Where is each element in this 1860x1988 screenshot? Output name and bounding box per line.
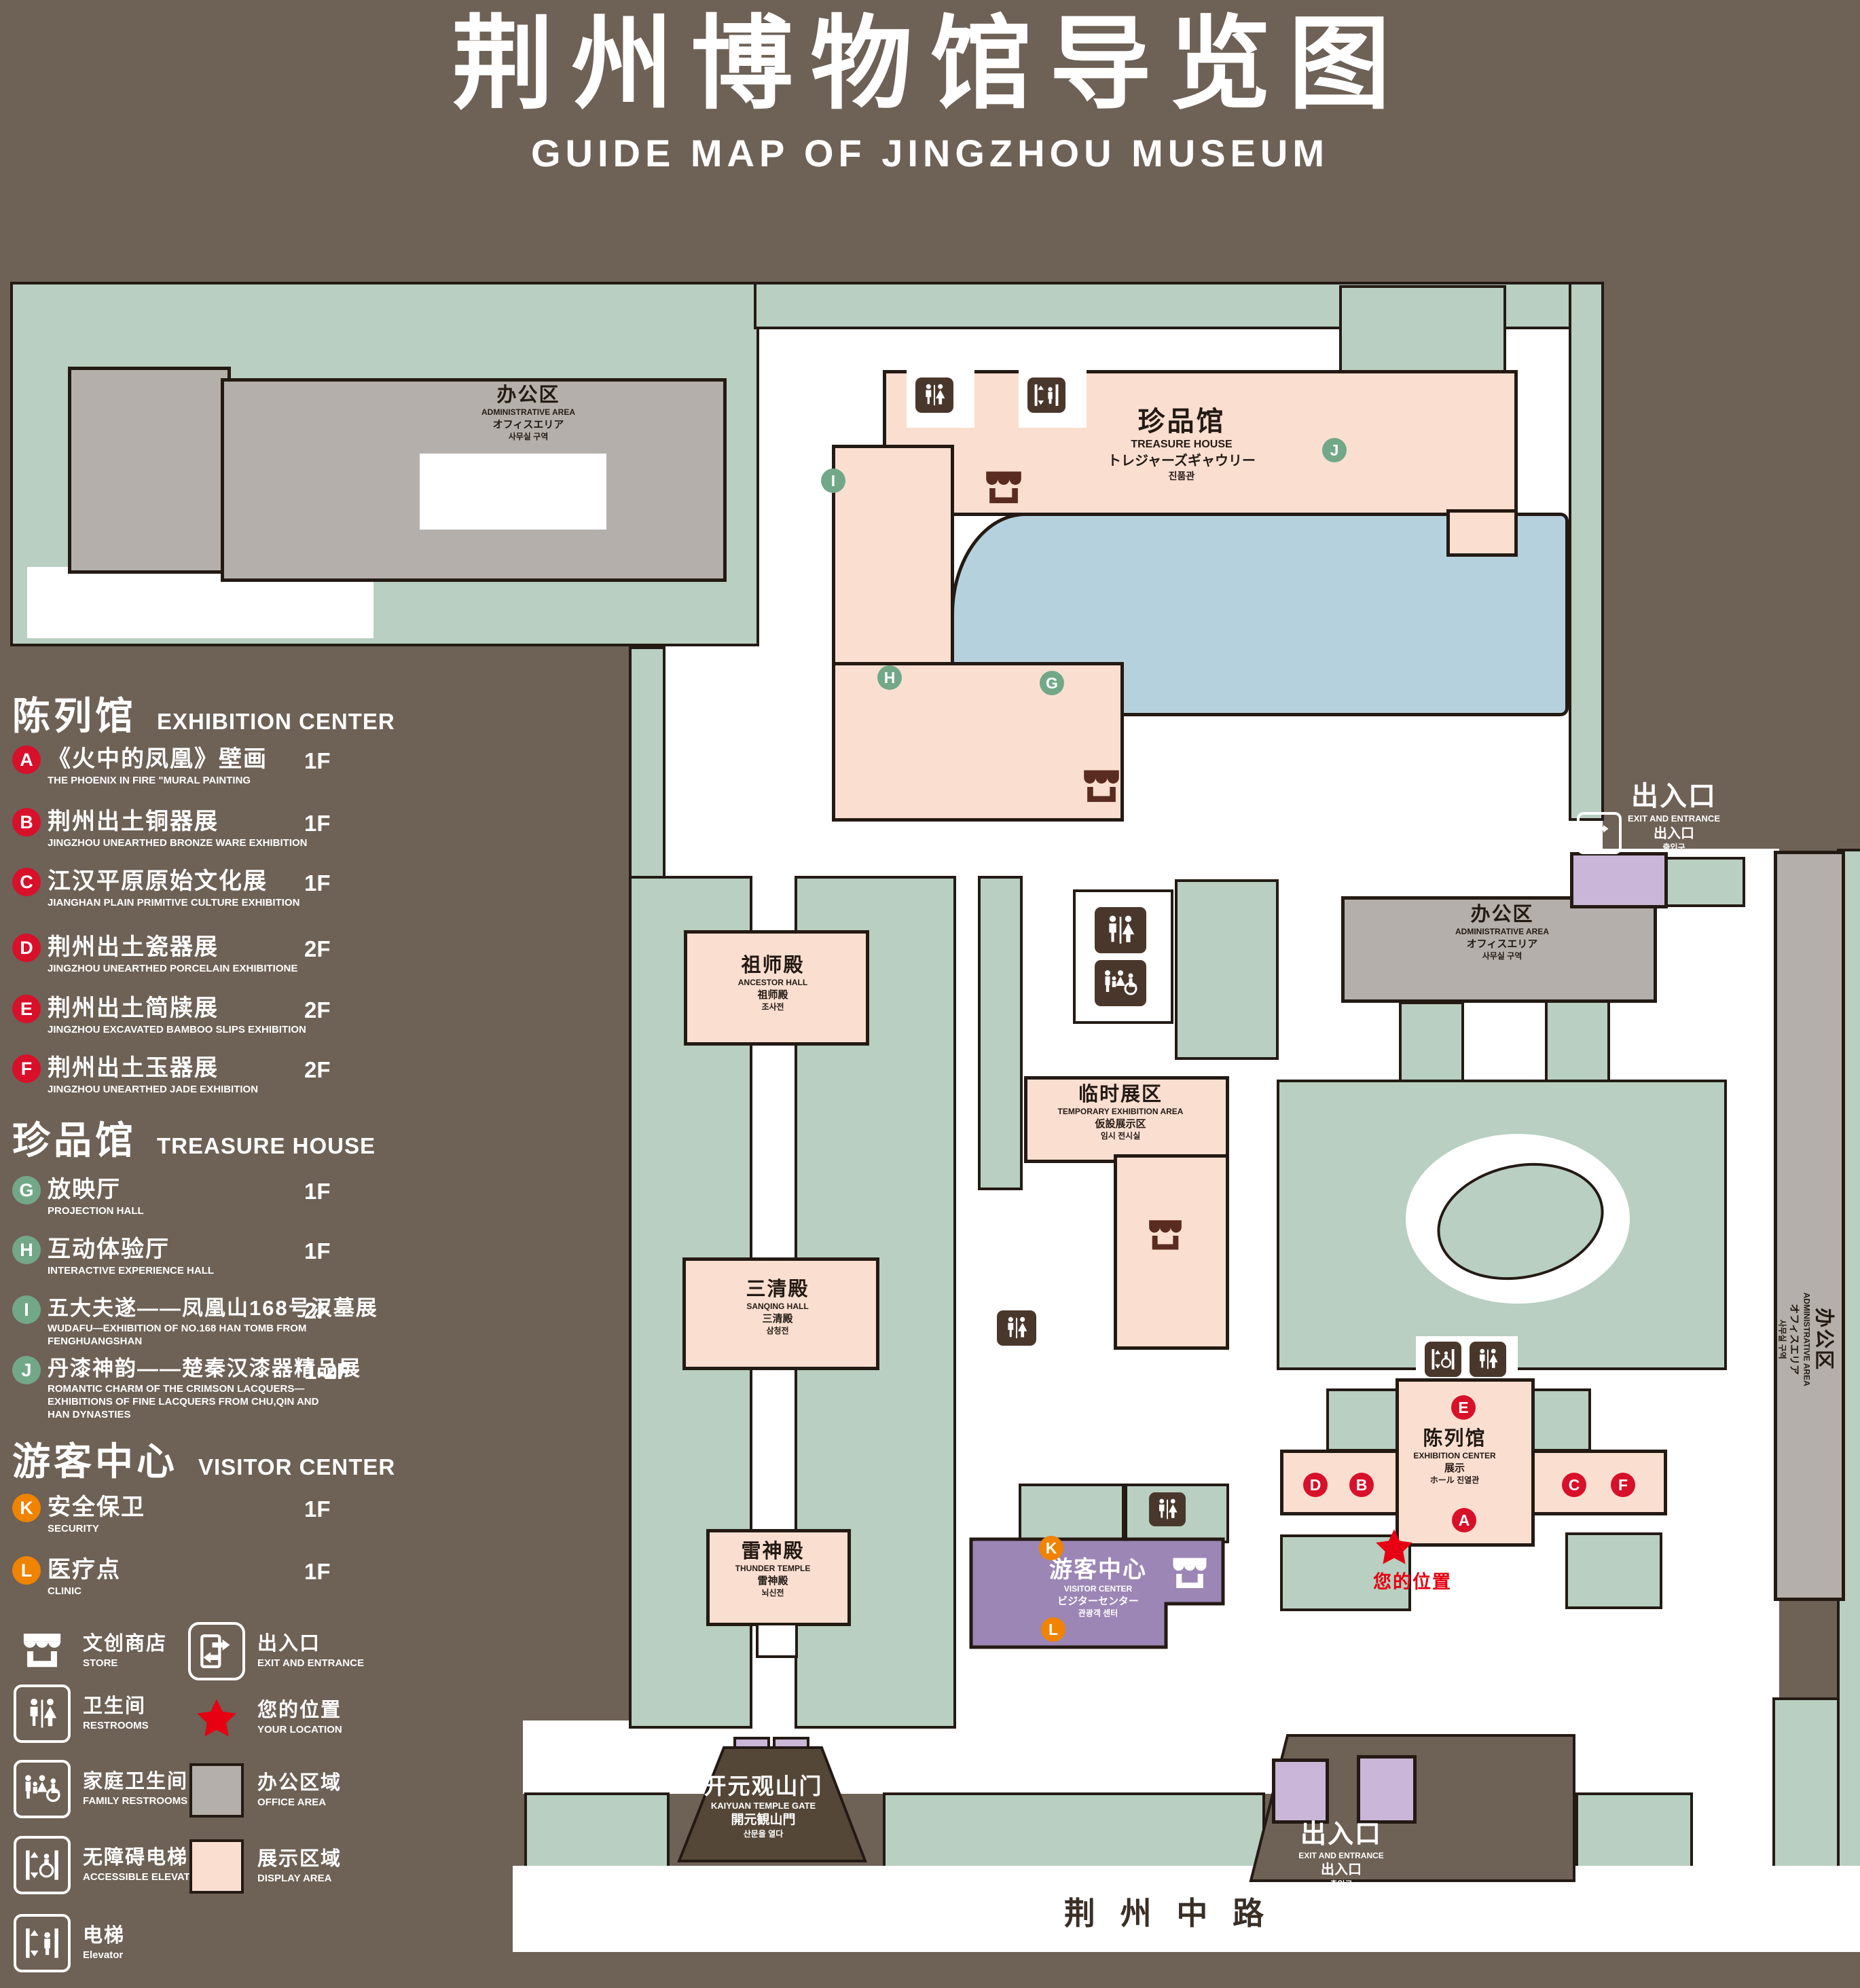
legend-item-J: J 丹漆神韵——楚秦汉漆器精品展 ROMANTIC CHARM OF THE C…: [12, 1356, 393, 1421]
marker-A: A: [1452, 1508, 1476, 1532]
badge-L: L: [12, 1556, 41, 1585]
label-thunder-temple: 雷神殿 THUNDER TEMPLE 雷神殿 뇌신전: [698, 1540, 847, 1598]
building-entrance-s2: [1357, 1755, 1417, 1824]
lawn-northeast-strip: [1569, 282, 1604, 821]
lawn-west-strip: [629, 646, 665, 880]
marker-G: G: [1040, 671, 1064, 695]
marker-C: C: [1562, 1473, 1586, 1497]
elevator-icon: [1027, 378, 1065, 413]
accessible-elevator-icon: [1425, 1342, 1461, 1377]
lawn-south-3: [1575, 1792, 1693, 1874]
label-admin-east: 办公区 ADMINISTRATIVE AREA オフィスエリア 사무실 구역: [1777, 1221, 1835, 1458]
badge-I: I: [12, 1295, 41, 1324]
admin-nw-courtyard: [420, 454, 606, 530]
building-entrance-s1: [1272, 1759, 1329, 1824]
legend-item-K: K 安全保卫 SECURITY 1F: [12, 1494, 352, 1536]
label-temporary: 临时展区 TEMPORARY EXHIBITION AREA 仮設展示区 임시 …: [1019, 1083, 1222, 1141]
floor-L: 1F: [304, 1559, 331, 1585]
badge-J: J: [12, 1356, 41, 1384]
restrooms-icon: [915, 378, 953, 413]
label-admin-mid: 办公区 ADMINISTRATIVE AREA オフィスエリア 사무실 구역: [1400, 903, 1604, 961]
marker-B: B: [1349, 1473, 1374, 1497]
lawn-mid-strip: [978, 876, 1023, 1190]
lawn-east-entrance: [1664, 857, 1745, 907]
legend-item-B: B 荆州出土铜器展 JINGZHOU UNEARTHED BRONZE WARE…: [12, 808, 352, 850]
badge-K: K: [12, 1494, 41, 1522]
legend: 陈列馆 EXHIBITION CENTER A 《火中的凤凰》壁画 THE PH…: [12, 682, 528, 1986]
floor-J: 1-2F: [304, 1359, 350, 1384]
path-east-strip: [1738, 849, 1774, 1700]
label-exit-northeast: 出入口 EXIT AND ENTRANCE 出入口 출입구: [1613, 781, 1735, 852]
thunder-temple-step: [756, 1623, 798, 1658]
legend-item-G: G 放映厅 PROJECTION HALL 1F: [12, 1176, 352, 1218]
legend-section-treasure-house: 珍品馆 TREASURE HOUSE: [12, 1110, 376, 1165]
lawn-mid-block: [1175, 879, 1279, 1060]
legend-symbol-display-area: 展示区域 DISPLAY AREA: [188, 1838, 342, 1895]
building-treasure-step: [1446, 509, 1518, 557]
legend-section-visitor-center: 游客中心 VISITOR CENTER: [12, 1431, 395, 1486]
legend-symbol-restrooms: 卫生间 RESTROOMS: [14, 1685, 149, 1742]
family-restrooms-icon: [14, 1761, 71, 1818]
badge-F: F: [12, 1054, 41, 1083]
floor-A: 1F: [304, 748, 331, 774]
legend-item-C: C 江汉平原原始文化展 JIANGHAN PLAIN PRIMITIVE CUL…: [12, 868, 352, 910]
store-icon: [1081, 769, 1122, 805]
legend-symbol-family-restrooms: 家庭卫生间 FAMILY RESTROOMS: [14, 1761, 188, 1818]
marker-E: E: [1451, 1395, 1476, 1420]
legend-item-F: F 荆州出土玉器展 JINGZHOU UNEARTHED JADE EXHIBI…: [12, 1054, 352, 1097]
road-label: 荆 州 中 路: [1039, 1889, 1297, 1934]
restrooms-icon: [997, 1310, 1036, 1346]
marker-H: H: [877, 665, 902, 690]
label-sanqing-hall: 三清殿 SANQING HALL 三清殿 삼청전: [703, 1278, 852, 1336]
label-ancestor-hall: 祖师殿 ANCESTOR HALL 祖师殿 조사전: [698, 954, 847, 1012]
office-area-swatch: [188, 1762, 245, 1819]
your-location-icon: [1375, 1528, 1413, 1565]
restrooms-icon: [1470, 1342, 1506, 1377]
title-en: GUIDE MAP OF JINGZHOU MUSEUM: [0, 131, 1860, 175]
building-entrance-ne: [1570, 852, 1668, 908]
your-location-label: 您的位置: [1348, 1567, 1477, 1594]
legend-section-exhibition-center: 陈列馆 EXHIBITION CENTER: [12, 686, 395, 741]
floor-F: 2F: [304, 1057, 331, 1083]
floor-I: 2F: [304, 1298, 331, 1324]
map-title: 荆州博物馆导览图 GUIDE MAP OF JINGZHOU MUSEUM: [0, 8, 1860, 175]
store-icon: [14, 1623, 71, 1680]
label-treasure-house: 珍品馆 TREASURE HOUSE トレジャーズギャウリー 진품관: [1080, 406, 1283, 481]
badge-B: B: [12, 808, 41, 836]
floor-D: 2F: [304, 936, 331, 962]
legend-item-L: L 医疗点 CLINIC 1F: [12, 1556, 352, 1598]
marker-J: J: [1322, 438, 1347, 462]
legend-symbol-elevator: 电梯 Elevator: [14, 1915, 125, 1972]
label-visitor-center: 游客中心 VISITOR CENTER ビジターセンター 관광객 센터: [1010, 1556, 1186, 1618]
legend-symbol-store: 文创商店 STORE: [14, 1623, 167, 1680]
lawn-south-2: [883, 1792, 1265, 1874]
marker-F: F: [1611, 1473, 1635, 1497]
exit-entrance-icon: [1577, 812, 1622, 854]
marker-L: L: [1041, 1617, 1065, 1642]
lawn-visitor-1: [1019, 1484, 1125, 1543]
badge-E: E: [12, 995, 41, 1023]
legend-symbol-office-area: 办公区域 OFFICE AREA: [188, 1762, 342, 1819]
restrooms-icon: [14, 1685, 71, 1742]
floor-G: 1F: [304, 1179, 331, 1204]
badge-G: G: [12, 1176, 41, 1204]
exit-entrance-icon: [188, 1623, 245, 1680]
legend-item-I: I 五大夫遂——凤凰山168号汉墓展 WUDAFU—EXHIBITION OF …: [12, 1295, 393, 1348]
marker-D: D: [1303, 1473, 1328, 1497]
display-area-swatch: [188, 1838, 245, 1895]
restrooms-icon: [1149, 1492, 1186, 1526]
accessible-elevator-icon: [14, 1837, 71, 1894]
floor-C: 1F: [304, 870, 331, 896]
lawn-north-block: [1339, 285, 1506, 375]
lawn-office-south-1: [1399, 1001, 1464, 1083]
badge-D: D: [12, 934, 41, 962]
label-exit-south: 出入口 EXIT AND ENTRANCE 出入口 출입구: [1253, 1820, 1429, 1889]
legend-item-A: A 《火中的凤凰》壁画 THE PHOENIX IN FIRE "MURAL P…: [12, 745, 352, 788]
lawn-office-south-2: [1545, 1000, 1610, 1083]
floor-E: 2F: [304, 997, 331, 1023]
title-zh: 荆州博物馆导览图: [0, 8, 1860, 120]
label-admin-nw: 办公区 ADMINISTRATIVE AREA オフィスエリア 사무실 구역: [426, 384, 630, 441]
building-admin-nw-tower: [68, 367, 231, 574]
store-icon: [1171, 1556, 1209, 1591]
legend-symbol-exit: 出入口 EXIT AND ENTRANCE: [188, 1623, 364, 1680]
marker-I: I: [821, 468, 845, 493]
marker-K: K: [1039, 1536, 1063, 1560]
badge-A: A: [12, 745, 41, 774]
elevator-icon: [14, 1915, 71, 1972]
legend-item-H: H 互动体验厅 INTERACTIVE EXPERIENCE HALL 1F: [12, 1236, 352, 1278]
badge-C: C: [12, 868, 41, 896]
your-location-icon: [188, 1689, 245, 1746]
label-exhibition-center: 陈列馆 EXHIBITION CENTER 展示 ホール 진열관: [1373, 1427, 1536, 1485]
label-kaiyuan-gate: 开元观山门 KAIYUAN TEMPLE GATE 開元観山門 산문을 열다: [675, 1773, 852, 1839]
building-treasure-south: [832, 662, 1124, 822]
lawn-south-1: [524, 1792, 670, 1873]
floor-H: 1F: [304, 1238, 331, 1264]
legend-item-D: D 荆州出土瓷器展 JINGZHOU UNEARTHED PORCELAIN E…: [12, 934, 352, 976]
legend-item-E: E 荆州出土简牍展 JINGZHOU EXCAVATED BAMBOO SLIP…: [12, 995, 352, 1037]
badge-H: H: [12, 1236, 41, 1264]
store-icon: [1146, 1219, 1184, 1253]
family-restrooms-icon: [1095, 960, 1146, 1006]
lawn-exhibition-se: [1565, 1532, 1662, 1609]
floor-K: 1F: [304, 1496, 331, 1522]
floor-B: 1F: [304, 811, 331, 836]
store-icon: [983, 470, 1024, 507]
legend-symbol-your-location: 您的位置 YOUR LOCATION: [188, 1689, 342, 1746]
restrooms-icon: [1095, 907, 1146, 953]
legend-symbol-accessible-elevator: 无障碍电梯 ACCESSIBLE ELEVATOR: [14, 1837, 205, 1894]
